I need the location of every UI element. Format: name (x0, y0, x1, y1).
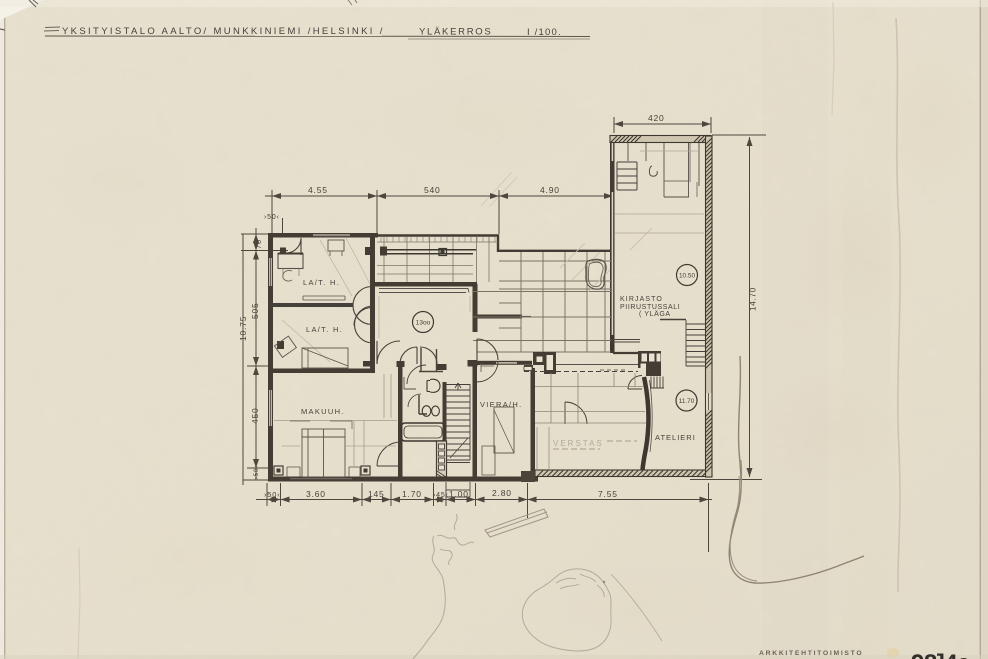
svg-text:MAKUUH.: MAKUUH. (301, 407, 345, 416)
svg-text:KIRJASTO: KIRJASTO (620, 296, 663, 303)
svg-text:420: 420 (648, 113, 665, 123)
svg-text:PIIRUSTUSSALI: PIIRUSTUSSALI (620, 304, 680, 311)
svg-text:1.00: 1.00 (449, 489, 469, 499)
svg-text:3.60: 3.60 (306, 489, 326, 499)
svg-text:›50‹: ›50‹ (264, 214, 280, 221)
svg-text:1.70: 1.70 (402, 489, 422, 499)
svg-text:VERSTAS: VERSTAS (553, 439, 604, 448)
svg-text:145: 145 (368, 489, 385, 499)
svg-text:70: 70 (254, 239, 263, 249)
svg-text:505: 505 (250, 302, 260, 319)
svg-text:7.55: 7.55 (598, 489, 618, 499)
svg-text:13oo: 13oo (416, 320, 431, 327)
svg-text:›50‹: ›50‹ (254, 465, 260, 479)
svg-text:10.75: 10.75 (238, 316, 248, 341)
svg-text:YKSITYISTALO AALTO/ MUNKKINIEM: YKSITYISTALO AALTO/ MUNKKINIEMI /HELSINK… (62, 26, 385, 37)
svg-text:4.90: 4.90 (540, 185, 560, 195)
svg-text:LA/T. H.: LA/T. H. (306, 325, 343, 334)
svg-text:11.70: 11.70 (679, 398, 695, 405)
svg-text:LA/T. H.: LA/T. H. (303, 278, 340, 287)
svg-text:ATELIERI: ATELIERI (655, 433, 696, 442)
svg-text:4.55: 4.55 (308, 185, 328, 195)
svg-text:VIERA/H.: VIERA/H. (480, 400, 523, 409)
svg-text:540: 540 (424, 185, 441, 195)
svg-text:98]4a: 98]4a (911, 650, 971, 659)
svg-text:( YLÄGA: ( YLÄGA (639, 310, 671, 318)
svg-text:2.80: 2.80 (492, 488, 512, 498)
svg-text:14.70: 14.70 (749, 287, 758, 311)
svg-text:450: 450 (250, 407, 260, 424)
svg-text:YLÄKERROS: YLÄKERROS (419, 27, 492, 38)
svg-text:10.50: 10.50 (679, 273, 695, 280)
svg-text:›50‹: ›50‹ (264, 490, 281, 499)
svg-text:ARKKITEHTITOIMISTO: ARKKITEHTITOIMISTO (759, 650, 863, 657)
